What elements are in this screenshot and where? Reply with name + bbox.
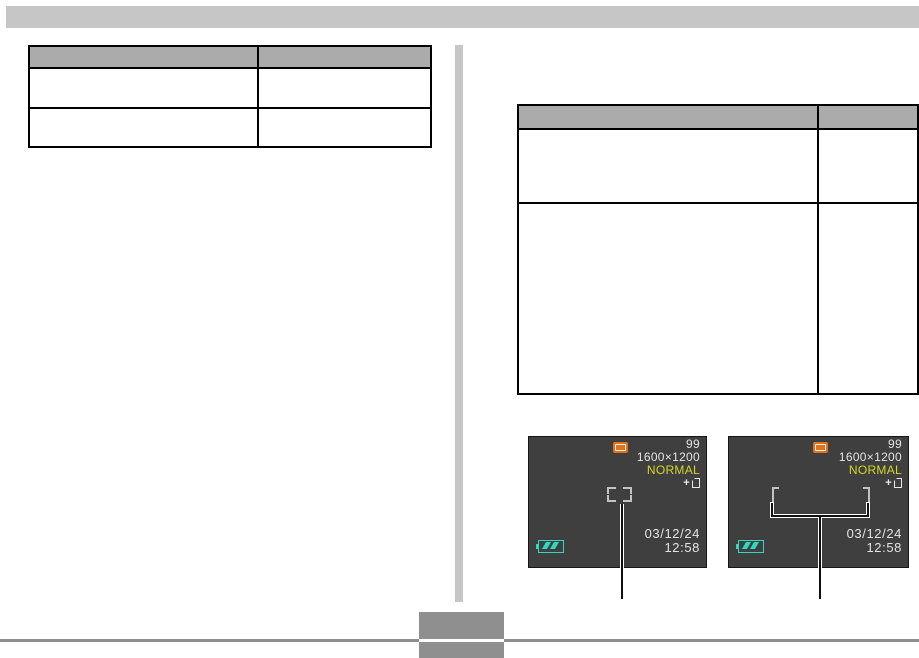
save-destination-indicator: +: [637, 477, 700, 489]
left-table: [28, 45, 432, 148]
plus-icon: +: [683, 478, 690, 488]
page-number-box: [419, 612, 504, 658]
lcd-screen-spot-focus: 99 1600×1200 NORMAL + 03/12/24 12:58: [528, 436, 707, 568]
snapshot-mode-icon-inner: [615, 444, 626, 451]
right-table-cell: [818, 203, 918, 394]
right-table-cell: [518, 129, 818, 203]
battery-nub: [736, 544, 739, 549]
plus-icon: +: [885, 478, 892, 488]
battery-stripe: [550, 542, 559, 549]
focus-corner-icon: [623, 487, 632, 494]
left-table-cell: [29, 68, 258, 108]
callout-bracket: [771, 503, 869, 517]
left-table-header-cell: [29, 46, 258, 68]
right-table-header-cell: [818, 105, 918, 129]
battery-level-icon: [738, 540, 764, 553]
right-table-cell: [518, 203, 818, 394]
snapshot-mode-icon: [613, 442, 628, 453]
time-stamp: 12:58: [847, 541, 902, 555]
page-header-bar: [6, 6, 919, 28]
time-stamp: 12:58: [645, 541, 700, 555]
focus-corner-icon: [607, 487, 616, 494]
snapshot-mode-icon-inner: [815, 444, 826, 451]
memory-card-icon: [692, 478, 700, 488]
left-table-cell: [29, 108, 258, 147]
snapshot-mode-icon: [813, 442, 828, 453]
battery-nub: [536, 544, 539, 549]
date-stamp: 03/12/24: [645, 527, 700, 541]
callout-line-wide-focus: [818, 517, 822, 599]
focus-frame-spot: [607, 487, 632, 502]
focus-bracket-left-icon: [772, 487, 779, 503]
lcd-datetime: 03/12/24 12:58: [847, 527, 902, 555]
memory-card-icon: [894, 478, 902, 488]
manual-page: 99 1600×1200 NORMAL + 03/12/24 12:58: [0, 0, 919, 658]
lcd-datetime: 03/12/24 12:58: [645, 527, 700, 555]
focus-corner-icon: [623, 495, 632, 502]
column-divider: [455, 45, 463, 602]
image-quality: NORMAL: [839, 464, 902, 477]
lcd-top-info: 99 1600×1200 NORMAL +: [637, 438, 700, 489]
focus-bracket-right-icon: [863, 487, 870, 503]
battery-level-icon: [538, 540, 564, 553]
right-table: [517, 104, 919, 395]
image-quality: NORMAL: [637, 464, 700, 477]
right-table-header-cell: [518, 105, 818, 129]
callout-line-spot-focus: [620, 504, 624, 599]
left-table-cell: [258, 68, 431, 108]
right-table-cell: [818, 129, 918, 203]
save-destination-indicator: +: [839, 477, 902, 489]
battery-stripe: [750, 542, 759, 549]
page-number-box-divider: [419, 639, 504, 642]
focus-corner-icon: [607, 495, 616, 502]
lcd-top-info: 99 1600×1200 NORMAL +: [839, 438, 902, 489]
date-stamp: 03/12/24: [847, 527, 902, 541]
left-table-header-cell: [258, 46, 431, 68]
left-table-cell: [258, 108, 431, 147]
